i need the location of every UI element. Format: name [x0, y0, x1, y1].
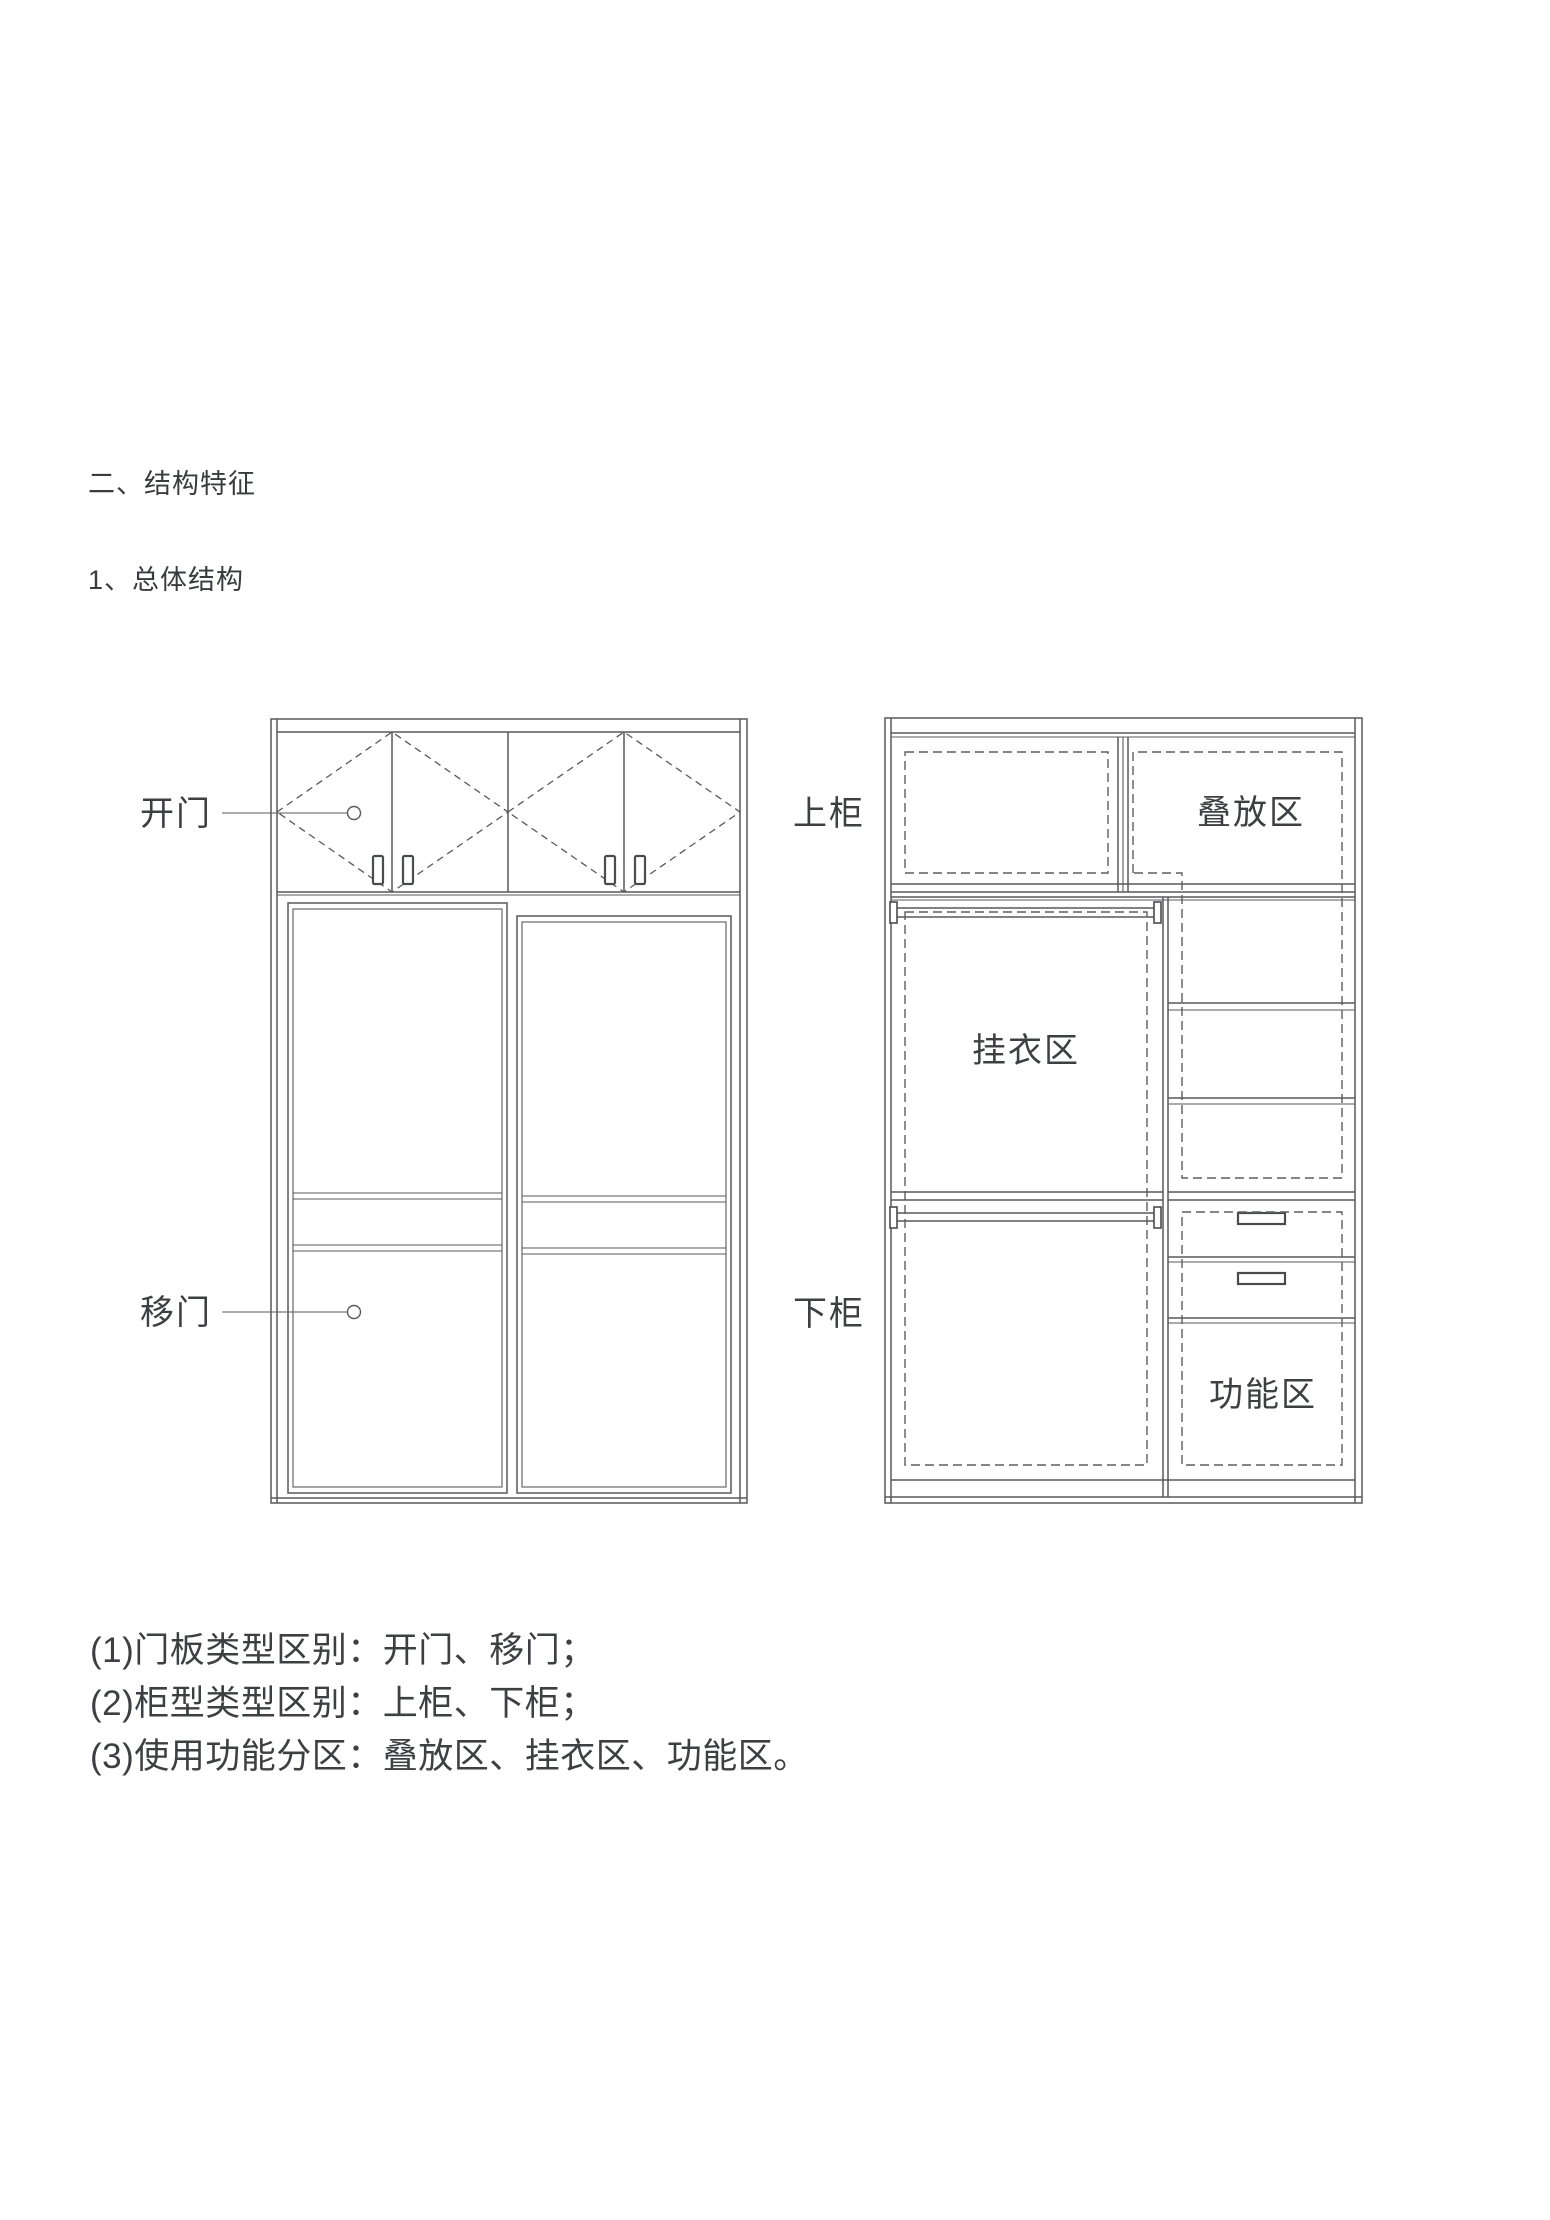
drawer-handle: [1238, 1213, 1285, 1224]
left-wardrobe-diagram: 开门 移门: [140, 719, 747, 1503]
hinged-door-label: 开门: [140, 795, 212, 833]
drawers: [1168, 1213, 1355, 1323]
callout-dot: [348, 807, 361, 820]
note-item-3: (3)使用功能分区：叠放区、挂衣区、功能区。: [90, 1730, 809, 1783]
left-wardrobe-frame: [271, 719, 747, 1503]
upper-cabinet-label: 上柜: [793, 795, 865, 833]
sliding-door-left-panel: [288, 903, 507, 1493]
sliding-doors: [288, 903, 731, 1493]
center-divider: [1163, 897, 1168, 1497]
stacking-zone-label: 叠放区: [1197, 794, 1305, 832]
note-item-2: (2)柜型类型区别：上柜、下柜；: [90, 1677, 809, 1730]
right-wardrobe-diagram: 上柜 下柜 叠放区 挂衣区 功能区: [793, 718, 1362, 1503]
notes-list: (1)门板类型区别：开门、移门； (2)柜型类型区别：上柜、下柜； (3)使用功…: [90, 1624, 809, 1783]
right-column-shelves: [1168, 1003, 1355, 1200]
hinged-door-handles: [373, 856, 645, 884]
hinged-door-callout: [222, 807, 361, 820]
hanging-rod-lower: [890, 1207, 1161, 1228]
drawer-handle: [1238, 1273, 1285, 1284]
hanging-zone-outline: [905, 912, 1147, 1465]
sliding-door-right-panel: [517, 916, 731, 1493]
functional-zone-outline: [1182, 1212, 1342, 1465]
hanging-zone-label: 挂衣区: [972, 1032, 1080, 1070]
sliding-door-callout: [222, 1306, 361, 1319]
note-item-1: (1)门板类型区别：开门、移门；: [90, 1624, 809, 1677]
sliding-door-label: 移门: [140, 1294, 212, 1332]
functional-zone-label: 功能区: [1209, 1376, 1317, 1414]
lower-cabinet-label: 下柜: [793, 1295, 865, 1333]
document-page: { "page": { "section_title": "二、结构特征", "…: [0, 0, 1550, 2220]
upper-left-compartment-zone: [905, 752, 1108, 873]
wardrobe-structure-diagram: 开门 移门: [0, 0, 1550, 2220]
callout-dot: [348, 1306, 361, 1319]
